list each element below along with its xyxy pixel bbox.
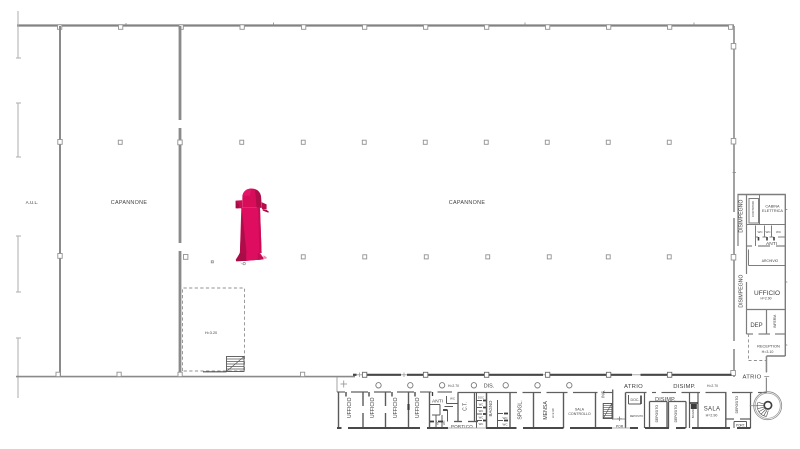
- svg-text:H=2.90: H=2.90: [706, 414, 718, 418]
- svg-text:WC: WC: [503, 416, 509, 420]
- svg-text:PORT.: PORT.: [736, 424, 745, 428]
- svg-text:UFFICIO: UFFICIO: [415, 397, 421, 418]
- svg-text:DISIMPEGNO: DISIMPEGNO: [738, 275, 744, 308]
- svg-text:A.U.L.: A.U.L.: [26, 200, 39, 205]
- svg-text:WC: WC: [766, 230, 772, 234]
- svg-text:DOC.: DOC.: [631, 398, 640, 402]
- svg-text:WC: WC: [442, 420, 446, 425]
- svg-text:H=2.70: H=2.70: [448, 384, 459, 388]
- svg-text:SALA: SALA: [575, 408, 585, 412]
- svg-text:WC: WC: [450, 397, 456, 401]
- svg-text:WC: WC: [479, 422, 484, 426]
- svg-text:SPOGL.: SPOGL.: [517, 400, 523, 419]
- svg-text:C.T.: C.T.: [462, 402, 468, 411]
- svg-text:ATRIO: ATRIO: [624, 384, 643, 390]
- svg-text:UFFICIO: UFFICIO: [347, 397, 353, 418]
- svg-text:DEP: DEP: [750, 323, 762, 329]
- svg-text:DEPOSITO: DEPOSITO: [674, 405, 678, 423]
- svg-text:ING.: ING.: [600, 390, 605, 399]
- svg-text:H=3.10: H=3.10: [762, 350, 774, 354]
- svg-text:UFFICIO: UFFICIO: [370, 397, 376, 418]
- svg-text:BAGNO: BAGNO: [691, 407, 695, 419]
- svg-text:H=3.20: H=3.20: [205, 331, 217, 335]
- svg-text:MENSA: MENSA: [543, 401, 549, 420]
- svg-text:INFERM.: INFERM.: [773, 314, 777, 328]
- svg-text:ELETTRICA: ELETTRICA: [762, 209, 783, 213]
- svg-text:DISIMP.: DISIMP.: [673, 384, 696, 390]
- svg-text:ARCHIVIO: ARCHIVIO: [762, 259, 779, 263]
- svg-text:WC: WC: [503, 423, 509, 427]
- svg-text:DEPOSITO: DEPOSITO: [630, 414, 643, 418]
- svg-text:BAGNO: BAGNO: [488, 400, 493, 416]
- svg-text:WC: WC: [776, 230, 782, 234]
- svg-text:ANTI: ANTI: [432, 399, 443, 405]
- svg-text:DOC: DOC: [478, 396, 484, 400]
- svg-text:WC: WC: [435, 420, 439, 425]
- svg-text:WC: WC: [479, 416, 484, 420]
- svg-text:WC: WC: [758, 230, 764, 234]
- svg-text:CONTATORI: CONTATORI: [751, 201, 755, 217]
- svg-text:H=2.90: H=2.90: [551, 408, 555, 418]
- svg-text:H=2.70: H=2.70: [707, 384, 718, 388]
- svg-text:DIS.: DIS.: [484, 383, 494, 389]
- svg-text:ATRIO: ATRIO: [742, 375, 761, 381]
- svg-text:CONTROLLO: CONTROLLO: [568, 412, 591, 416]
- svg-text:UFFICIO: UFFICIO: [393, 397, 399, 418]
- svg-text:DEPOSITO: DEPOSITO: [655, 405, 659, 423]
- svg-text:CAPANNONE: CAPANNONE: [449, 200, 486, 206]
- svg-text:CAPANNONE: CAPANNONE: [111, 200, 148, 206]
- svg-text:WC: WC: [479, 403, 484, 407]
- svg-text:SALA: SALA: [704, 407, 721, 413]
- svg-text:CABINA: CABINA: [765, 205, 780, 209]
- svg-text:ANTI: ANTI: [766, 241, 777, 247]
- svg-text:WC: WC: [479, 409, 484, 413]
- svg-text:DISIMPEGNO: DISIMPEGNO: [738, 200, 744, 233]
- svg-text:RECEPTION: RECEPTION: [757, 344, 780, 349]
- svg-text:H=2.90: H=2.90: [760, 297, 771, 301]
- svg-text:DEPOSITO: DEPOSITO: [735, 396, 739, 414]
